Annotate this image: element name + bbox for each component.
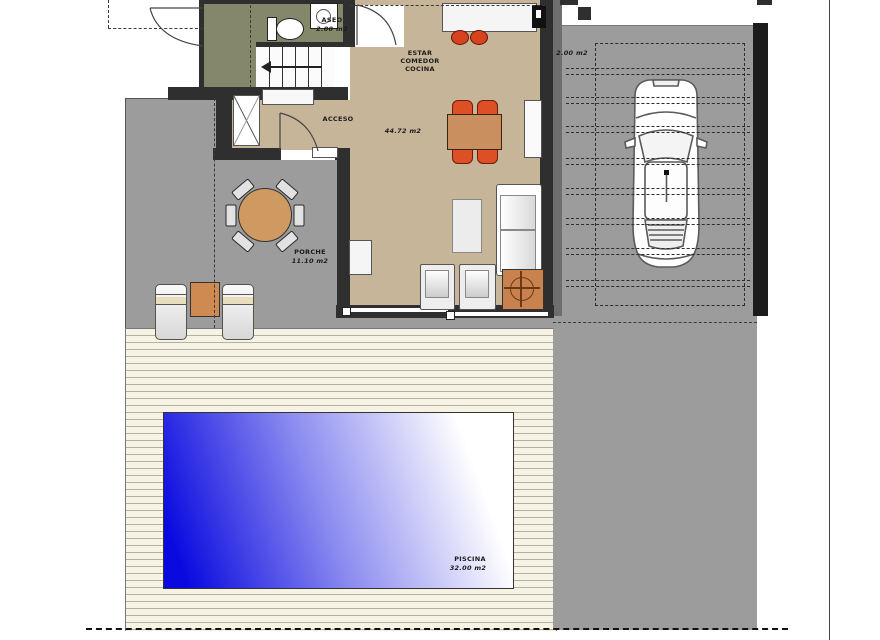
floor-plan: PISCINA 32.00 m2 [0, 0, 880, 640]
door-arcs [0, 0, 880, 640]
room-area-estar: 44.72 m2 [378, 128, 428, 135]
room-label-porche: PORCHE [288, 249, 332, 256]
carport-area-label: 2.00 m2 [550, 50, 594, 57]
room-label-acceso: ACCESO [316, 116, 360, 123]
room-area-porche: 11.10 m2 [286, 258, 334, 265]
room-area-aseo: 2.00 m2 [306, 26, 358, 33]
aseo-door-arc [357, 5, 396, 45]
entry-door-arc [280, 113, 318, 151]
exterior-door-arc [150, 8, 203, 46]
room-label-aseo: ASEO [310, 17, 354, 24]
room-label-estar-3: COCINA [390, 66, 450, 73]
